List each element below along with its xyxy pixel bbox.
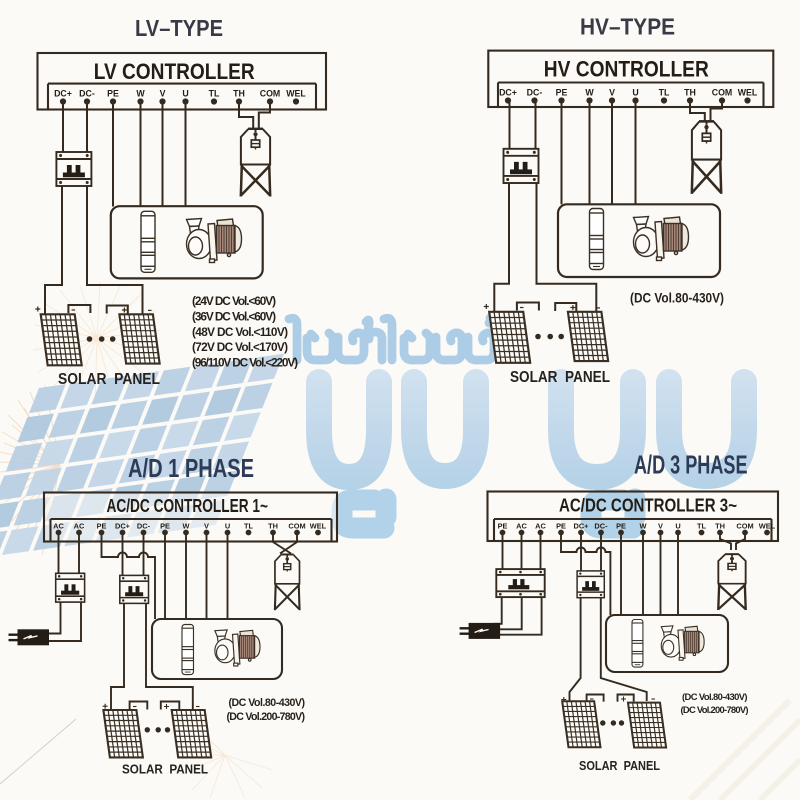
- svg-text:LV–TYPE: LV–TYPE: [135, 15, 223, 41]
- svg-text:COM: COM: [288, 522, 305, 531]
- svg-text:AC: AC: [535, 522, 546, 531]
- svg-text:DC+: DC+: [54, 89, 72, 99]
- svg-text:PE: PE: [616, 522, 626, 531]
- svg-text:PE: PE: [498, 522, 508, 531]
- svg-text:DC+: DC+: [574, 522, 590, 531]
- svg-text:PE: PE: [97, 522, 107, 531]
- svg-text:AC/DC CONTROLLER 3~: AC/DC CONTROLLER 3~: [559, 496, 737, 516]
- svg-text:COM: COM: [736, 522, 753, 531]
- svg-text:(DC Vol.80-430V): (DC Vol.80-430V): [229, 697, 306, 709]
- svg-text:(96/110V DC Vol.<220V): (96/110V DC Vol.<220V): [192, 356, 298, 370]
- svg-text:DC+: DC+: [115, 522, 131, 531]
- svg-text:AC/DC CONTROLLER 1~: AC/DC CONTROLLER 1~: [107, 496, 269, 516]
- svg-text:A/D 3 PHASE: A/D 3 PHASE: [634, 452, 748, 480]
- svg-text:PE: PE: [107, 89, 119, 99]
- svg-text:COM: COM: [712, 88, 733, 98]
- svg-text:HV–TYPE: HV–TYPE: [580, 14, 675, 40]
- svg-text:TH: TH: [233, 89, 245, 99]
- svg-text:TL: TL: [244, 522, 254, 531]
- svg-text:(DC Vol.80-430V): (DC Vol.80-430V): [682, 691, 748, 702]
- svg-text:HV CONTROLLER: HV CONTROLLER: [544, 57, 709, 82]
- svg-text:SOLAR PANEL: SOLAR PANEL: [579, 759, 660, 773]
- svg-text:(DC Vol.200-780V): (DC Vol.200-780V): [681, 704, 749, 715]
- svg-text:V: V: [160, 89, 166, 99]
- svg-text:WEL: WEL: [310, 522, 327, 531]
- svg-text:WEL: WEL: [738, 88, 758, 98]
- svg-text:DC-: DC-: [137, 522, 151, 531]
- svg-text:W: W: [183, 522, 190, 531]
- svg-text:PE: PE: [556, 88, 568, 98]
- svg-text:TL: TL: [209, 89, 220, 99]
- svg-text:U: U: [225, 522, 230, 531]
- svg-text:LV CONTROLLER: LV CONTROLLER: [94, 59, 255, 84]
- svg-text:DC+: DC+: [499, 88, 517, 98]
- svg-text:A/D 1 PHASE: A/D 1 PHASE: [128, 455, 254, 483]
- svg-text:(72V DC Vol.<170V): (72V DC Vol.<170V): [192, 340, 288, 354]
- svg-text:SOLAR PANEL: SOLAR PANEL: [122, 762, 208, 777]
- svg-text:U: U: [632, 88, 638, 98]
- svg-text:WEL: WEL: [759, 522, 776, 531]
- svg-text:V: V: [609, 88, 615, 98]
- svg-text:SOLAR PANEL: SOLAR PANEL: [510, 369, 610, 386]
- svg-text:AC: AC: [74, 522, 85, 531]
- svg-text:U: U: [675, 522, 680, 531]
- svg-text:V: V: [204, 522, 209, 531]
- svg-text:W: W: [136, 89, 145, 99]
- svg-text:PE: PE: [556, 522, 566, 531]
- svg-text:U: U: [182, 89, 188, 99]
- svg-text:WEL: WEL: [286, 89, 306, 99]
- svg-text:PE: PE: [160, 522, 170, 531]
- svg-text:COM: COM: [260, 89, 281, 99]
- svg-text:(24V DC Vol.<60V): (24V DC Vol.<60V): [192, 294, 276, 308]
- svg-text:TL: TL: [697, 522, 707, 531]
- svg-text:TH: TH: [715, 522, 725, 531]
- svg-text:TH: TH: [684, 88, 696, 98]
- svg-text:(48V DC Vol.<110V): (48V DC Vol.<110V): [192, 325, 288, 339]
- svg-text:(36V DC Vol.<60V): (36V DC Vol.<60V): [192, 309, 276, 323]
- svg-text:DC-: DC-: [527, 88, 543, 98]
- svg-text:W: W: [585, 88, 594, 98]
- svg-text:V: V: [658, 522, 663, 531]
- svg-text:DC-: DC-: [79, 89, 95, 99]
- svg-text:AC: AC: [53, 522, 64, 531]
- svg-text:W: W: [640, 522, 647, 531]
- svg-text:(DC Vol.200-780V): (DC Vol.200-780V): [227, 711, 306, 723]
- svg-text:TL: TL: [659, 88, 670, 98]
- svg-text:TH: TH: [268, 522, 278, 531]
- svg-text:DC-: DC-: [594, 522, 608, 531]
- svg-text:SOLAR PANEL: SOLAR PANEL: [58, 371, 160, 388]
- svg-text:(DC Vol.80-430V): (DC Vol.80-430V): [630, 291, 724, 306]
- svg-text:AC: AC: [516, 522, 527, 531]
